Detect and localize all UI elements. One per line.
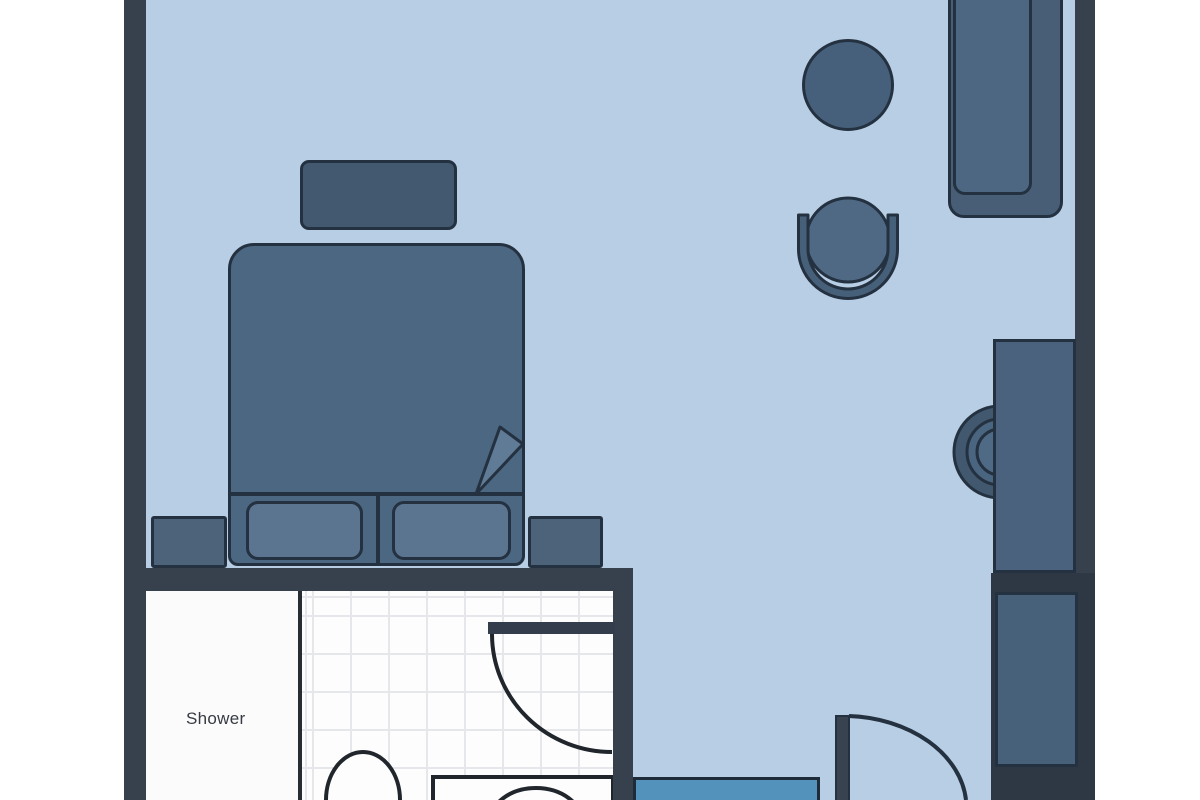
desk (993, 339, 1076, 573)
duvet-folded-corner (455, 410, 540, 505)
floorplan-canvas: Shower (0, 0, 1200, 800)
entry-door-swing-arc (849, 716, 966, 800)
pillow-left (246, 501, 363, 560)
desk-chair (945, 400, 1000, 510)
pillow-right (392, 501, 511, 560)
nightstand-left (151, 516, 227, 568)
toilet-icon (326, 752, 400, 800)
wardrobe-door-panel (995, 592, 1078, 767)
shower-area: Shower (146, 591, 298, 800)
armchair (788, 185, 908, 310)
headboard (300, 160, 457, 230)
wall-left (124, 0, 146, 800)
bathroom-door-swing-arc (492, 634, 612, 752)
bathroom-door-swing (480, 618, 625, 758)
sofa-seat (953, 0, 1032, 195)
bench (633, 777, 820, 800)
side-table (802, 39, 894, 131)
nightstand-right (528, 516, 603, 568)
armchair-seat (806, 198, 890, 282)
folded-corner-icon (476, 427, 523, 494)
wall-bathroom-divider (124, 568, 633, 591)
shower-label: Shower (186, 709, 245, 729)
duvet-split-line (376, 496, 380, 564)
entry-door-swing (840, 698, 980, 800)
